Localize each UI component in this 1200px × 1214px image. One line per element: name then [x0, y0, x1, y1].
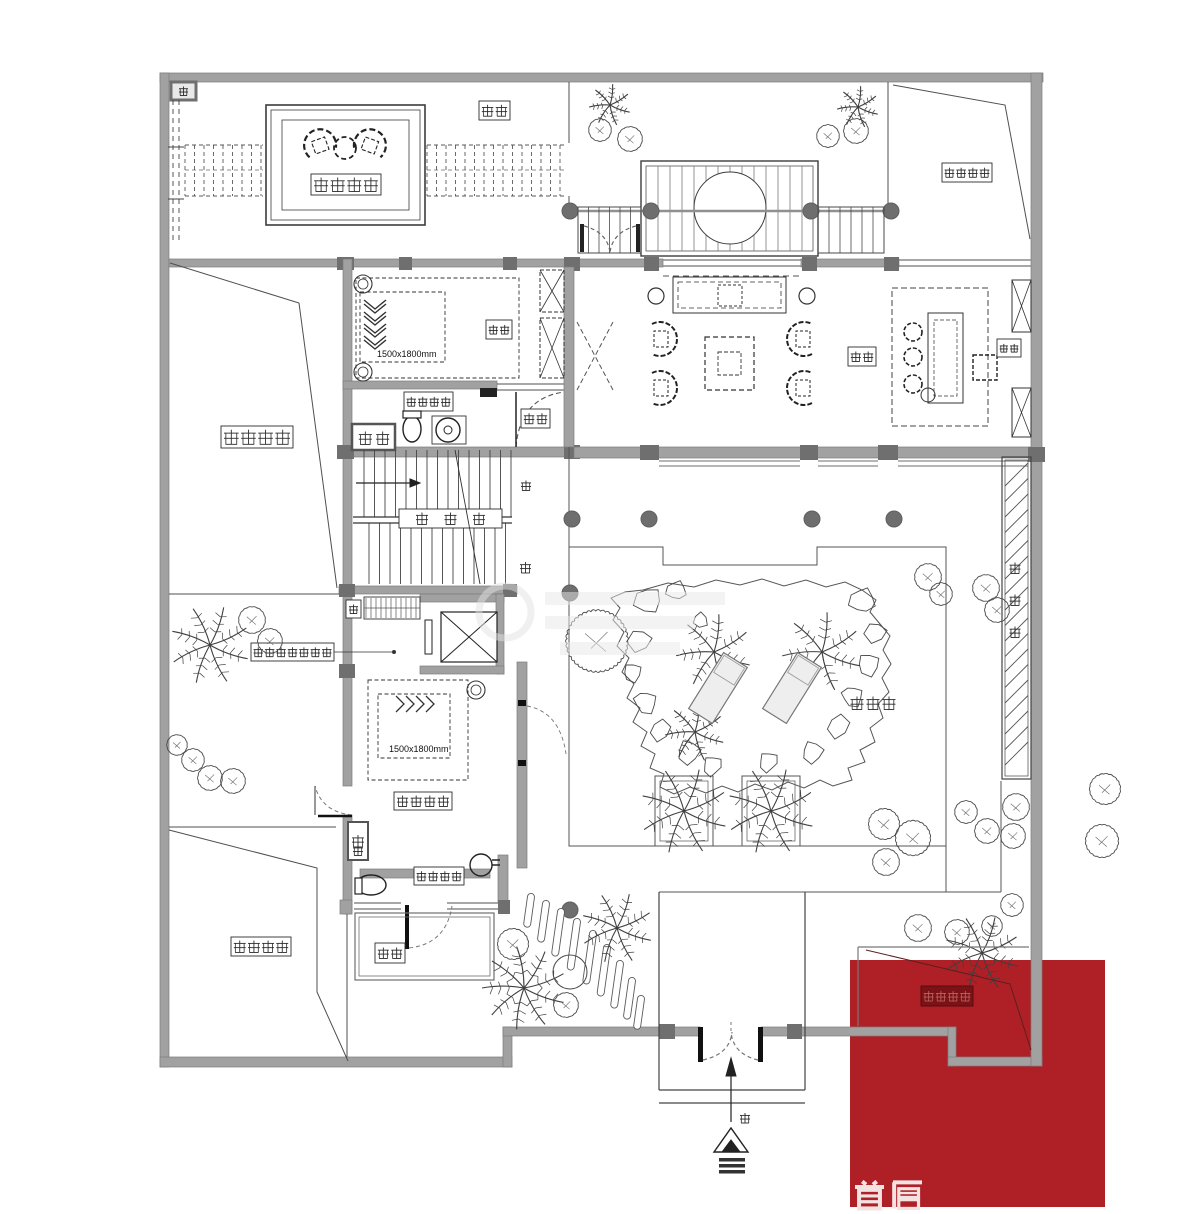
svg-text:1500x1800mm: 1500x1800mm: [377, 349, 437, 359]
svg-text:1500x1800mm: 1500x1800mm: [389, 744, 449, 754]
